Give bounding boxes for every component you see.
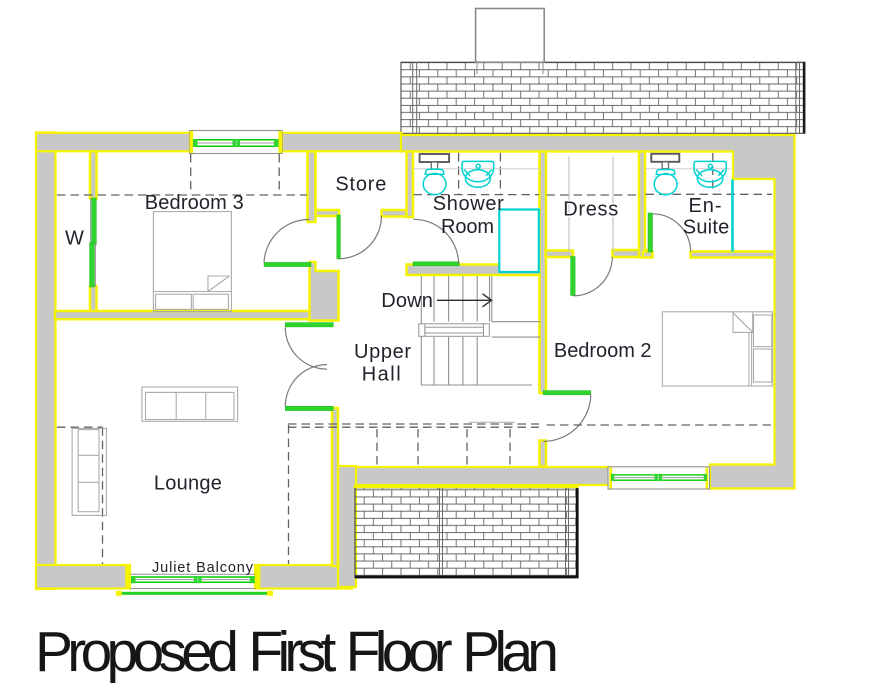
svg-text:Down: Down [381,290,433,312]
svg-text:Lounge: Lounge [154,472,222,494]
svg-text:En-: En- [689,195,722,217]
svg-text:Store: Store [335,174,386,196]
svg-text:Dress: Dress [563,198,618,220]
svg-text:Bedroom 3: Bedroom 3 [145,192,244,214]
svg-text:Upper: Upper [354,341,411,363]
svg-text:Room: Room [441,216,494,238]
svg-text:Proposed First Floor Plan: Proposed First Floor Plan [35,620,559,684]
svg-text:Shower: Shower [433,193,504,215]
svg-text:Juliet Balcony: Juliet Balcony [152,560,254,576]
svg-text:W: W [65,228,84,250]
svg-text:Suite: Suite [683,217,730,239]
svg-text:Bedroom 2: Bedroom 2 [554,340,652,362]
